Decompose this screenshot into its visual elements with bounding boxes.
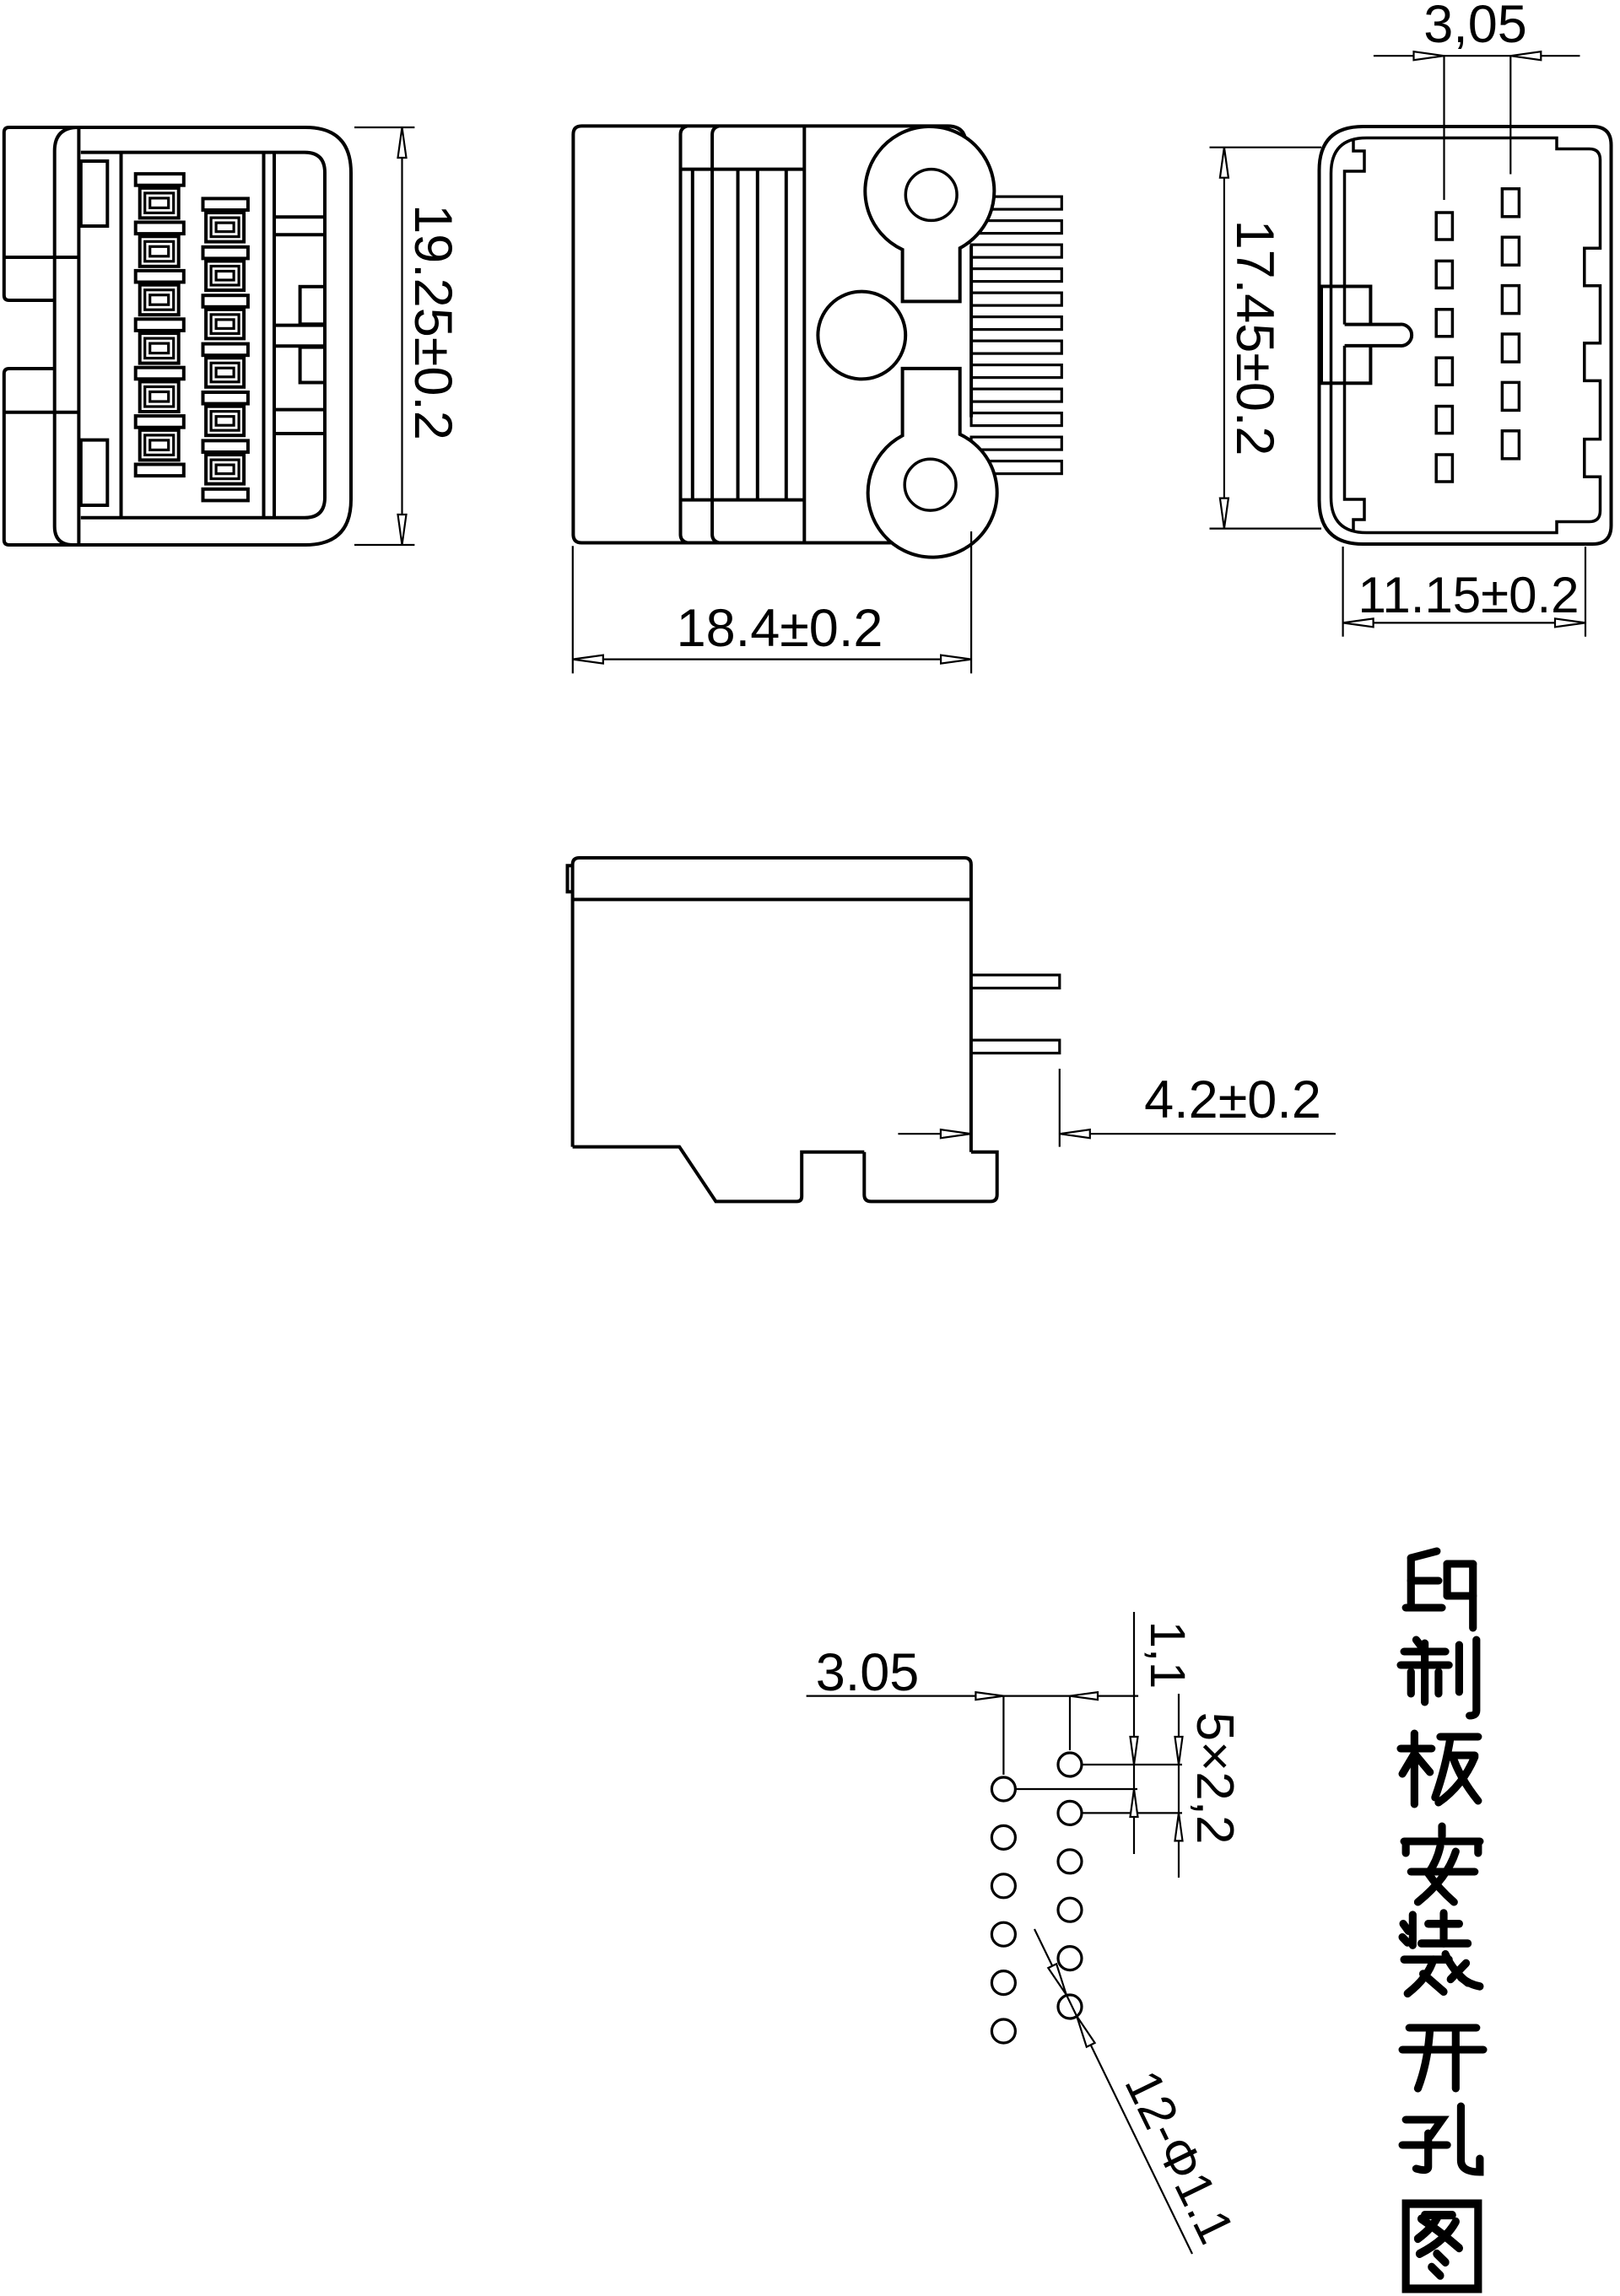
svg-text:18.4±0.2: 18.4±0.2 <box>677 599 883 658</box>
svg-text:5×2,2: 5×2,2 <box>1185 1712 1244 1845</box>
svg-text:1,1: 1,1 <box>1140 1621 1195 1690</box>
svg-text:11.15±0.2: 11.15±0.2 <box>1358 567 1579 623</box>
svg-text:4.2±0.2: 4.2±0.2 <box>1144 1070 1321 1129</box>
svg-text:17.45±0.2: 17.45±0.2 <box>1225 220 1284 456</box>
svg-text:19.25±0.2: 19.25±0.2 <box>403 204 462 440</box>
svg-text:3,05: 3,05 <box>1423 0 1527 54</box>
svg-text:3.05: 3.05 <box>816 1643 920 1702</box>
